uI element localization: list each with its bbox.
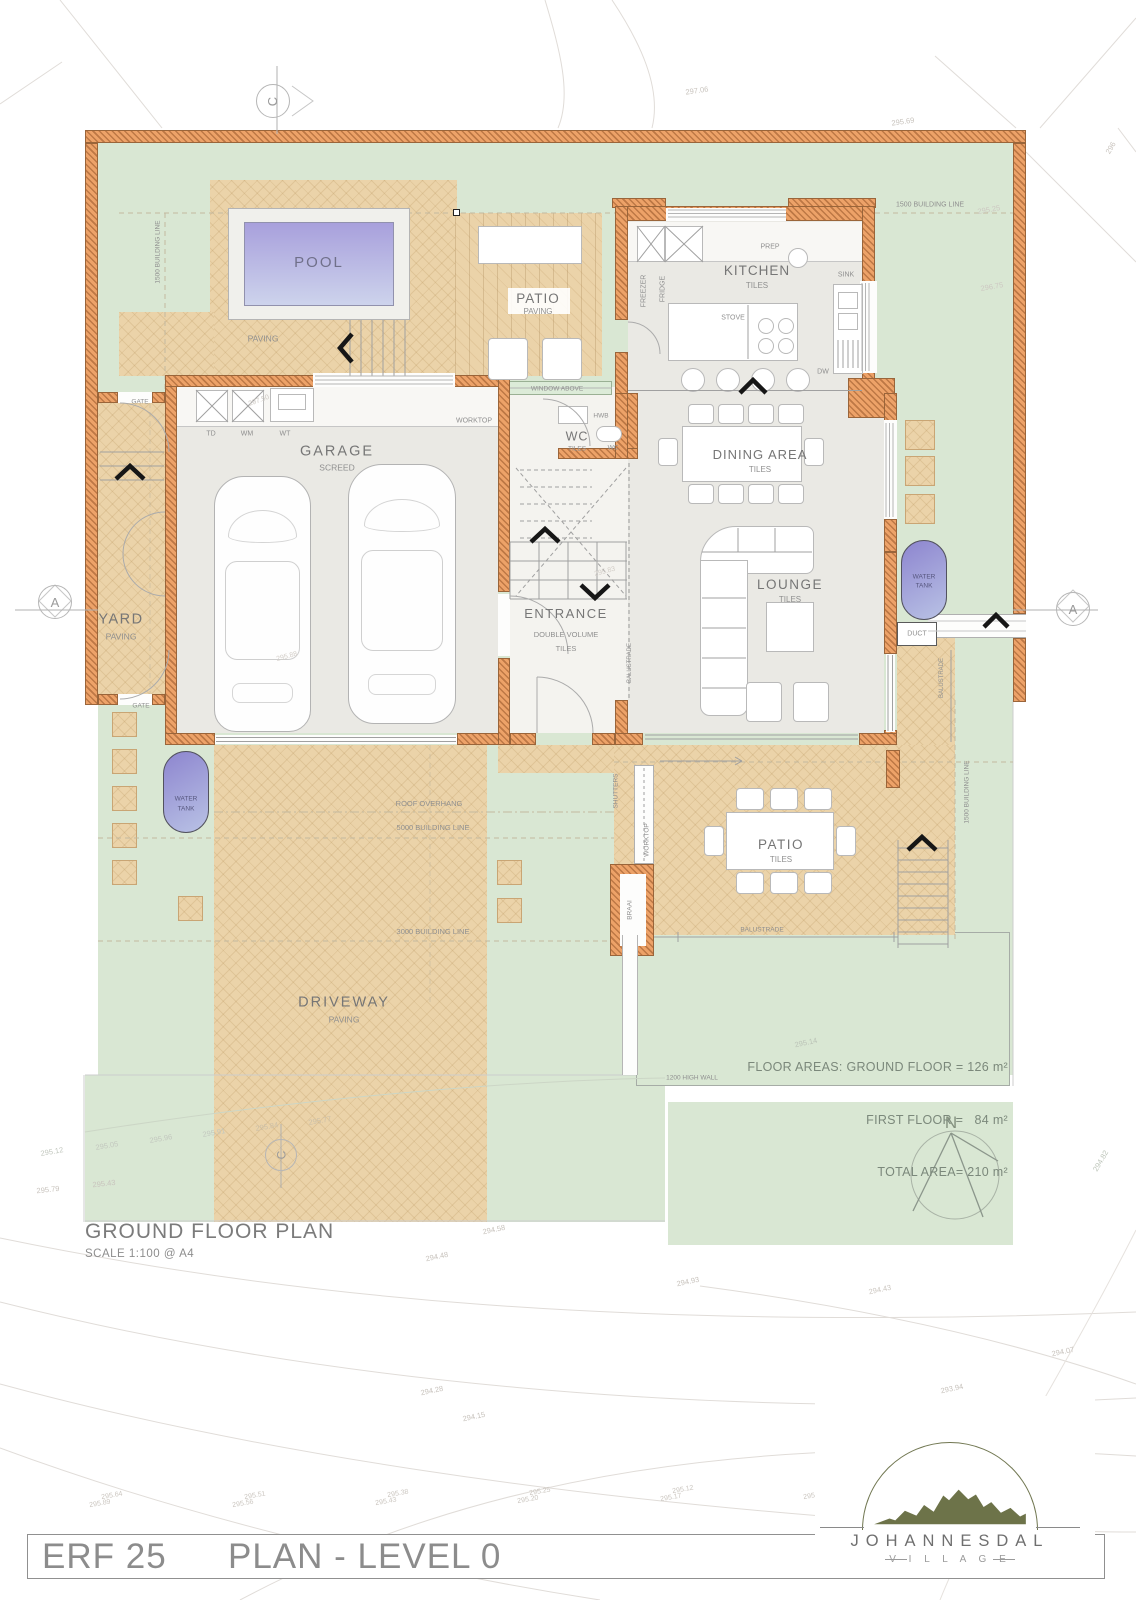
floor-areas-total: TOTAL AREA= 210 m²: [640, 1164, 1008, 1182]
logo-subtitle: V I L L A G E: [815, 1554, 1085, 1565]
floor-plan-page: POOLPAVINGPATIOPAVINGKITCHENTILESPREPFRE…: [0, 0, 1136, 1600]
plan-level-title: PLAN - LEVEL 0: [228, 1537, 501, 1577]
floor-areas-table: FLOOR AREAS: GROUND FLOOR = 126 m² FIRST…: [640, 1024, 1008, 1217]
logo-name: JOHANNESDAL: [815, 1532, 1085, 1551]
section-marker-a-right: A: [1056, 592, 1090, 626]
stair-and-glazing-lines: [100, 210, 1026, 948]
page-scale: SCALE 1:100 @ A4: [85, 1248, 194, 1260]
direction-arrows: [116, 334, 1008, 850]
section-marker-c-top: C: [256, 84, 290, 118]
mountain-icon: [865, 1482, 1035, 1530]
logo-rule-left: [820, 1527, 864, 1528]
section-marker-shapes: [15, 66, 1098, 1188]
page-title: GROUND FLOOR PLAN: [85, 1220, 334, 1244]
section-marker-a-left: A: [38, 585, 72, 619]
linework-layer: [0, 0, 1136, 1600]
johannesdal-logo: JOHANNESDAL V I L L A G E: [815, 1396, 1095, 1578]
floor-areas-ground: FLOOR AREAS: GROUND FLOOR = 126 m²: [640, 1059, 1008, 1077]
section-marker-c-bottom: C: [265, 1139, 297, 1171]
logo-rule-right: [1036, 1527, 1080, 1528]
erf-number: ERF 25: [42, 1537, 167, 1577]
floor-areas-first: FIRST FLOOR = 84 m²: [640, 1112, 1008, 1130]
